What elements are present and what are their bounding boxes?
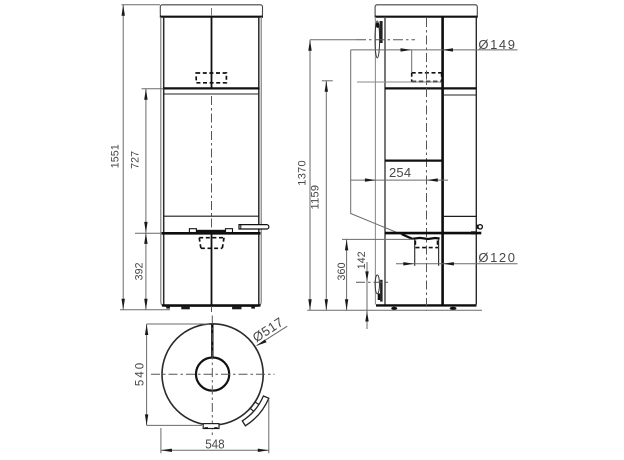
svg-text:360: 360 (336, 262, 348, 280)
svg-text:Ø149: Ø149 (478, 37, 516, 52)
svg-text:1551: 1551 (110, 144, 122, 168)
svg-text:254: 254 (389, 165, 411, 180)
svg-text:540: 540 (135, 361, 147, 386)
svg-text:Ø120: Ø120 (478, 250, 516, 265)
svg-text:1370: 1370 (297, 160, 309, 186)
svg-text:392: 392 (134, 262, 146, 280)
svg-text:142: 142 (356, 251, 368, 269)
svg-text:548: 548 (205, 436, 225, 451)
svg-text:1159: 1159 (310, 185, 322, 210)
svg-text:727: 727 (129, 151, 141, 169)
svg-text:Ø517: Ø517 (250, 314, 287, 345)
